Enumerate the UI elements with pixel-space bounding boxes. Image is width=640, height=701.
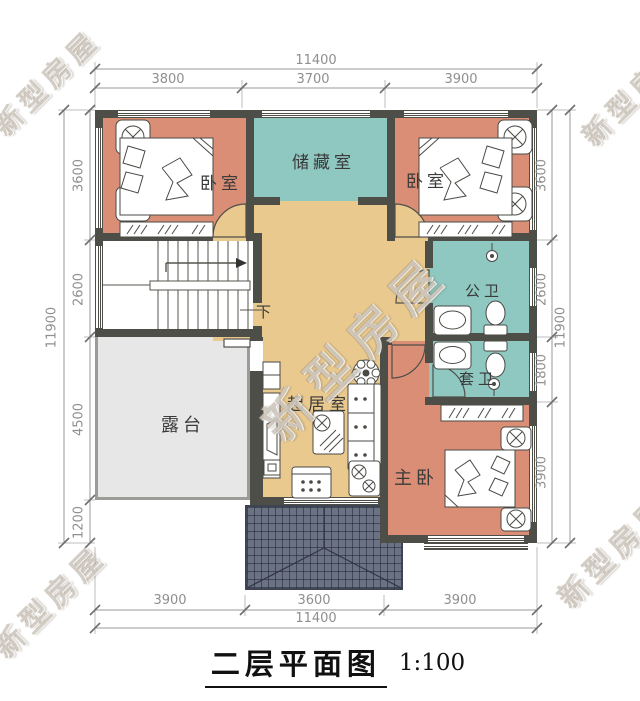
dim-left-seg-3: 1200 bbox=[72, 493, 87, 553]
dim-right-seg-3: 3900 bbox=[535, 443, 550, 503]
window bbox=[284, 497, 378, 505]
floor-plan: 卧室 储藏室 卧室 公卫 套卫 起居室 露台 主卧 下 11400 3800 3… bbox=[0, 0, 640, 701]
window bbox=[428, 535, 524, 543]
room-label-living: 起居室 bbox=[287, 390, 350, 415]
dim-left-seg-0: 3600 bbox=[72, 146, 87, 206]
wall bbox=[380, 337, 392, 345]
dim-right-seg-2: 1800 bbox=[535, 341, 550, 401]
window bbox=[262, 110, 370, 118]
dim-bottom-seg-1: 3600 bbox=[284, 593, 344, 608]
drawing-title: 二层平面图 bbox=[205, 641, 387, 688]
wall bbox=[358, 197, 387, 205]
dim-left-seg-1: 2600 bbox=[72, 260, 87, 320]
drawing-scale: 1:100 bbox=[399, 650, 465, 676]
terrace-door-opening bbox=[250, 341, 263, 371]
stairs-down-label: 下 bbox=[256, 301, 271, 322]
wall bbox=[425, 333, 537, 341]
dim-left-seg-2: 4500 bbox=[72, 390, 87, 450]
wall bbox=[425, 397, 537, 405]
window bbox=[95, 246, 103, 328]
wall bbox=[380, 337, 388, 543]
room-label-ensuite-bath: 套卫 bbox=[459, 368, 497, 389]
dim-right-seg-1: 2600 bbox=[535, 260, 550, 320]
dim-top-seg-0: 3800 bbox=[138, 72, 198, 87]
window bbox=[95, 128, 103, 228]
master-corridor-fill bbox=[384, 341, 429, 405]
wall bbox=[425, 241, 433, 268]
window-sill bbox=[424, 543, 528, 550]
wall bbox=[95, 329, 262, 337]
drawing-title-block: 二层平面图1:100 bbox=[170, 641, 500, 688]
watermark: 新型房屋 bbox=[0, 534, 114, 667]
dim-right-total: 11900 bbox=[554, 298, 569, 358]
wall bbox=[428, 233, 529, 241]
dim-top-seg-2: 3900 bbox=[431, 72, 491, 87]
dim-left-total: 11900 bbox=[45, 298, 60, 358]
room-label-master: 主卧 bbox=[394, 464, 438, 490]
watermark: 新型房屋 bbox=[546, 484, 640, 617]
window bbox=[118, 110, 210, 118]
room-label-storage: 储藏室 bbox=[292, 148, 355, 173]
dim-right-seg-0: 3600 bbox=[535, 146, 550, 206]
room-label-public-bath: 公卫 bbox=[465, 280, 503, 301]
stairwell-fill bbox=[103, 241, 253, 329]
room-label-terrace: 露台 bbox=[161, 411, 205, 437]
dim-bottom-seg-2: 3900 bbox=[430, 593, 490, 608]
watermark: 新型房屋 bbox=[0, 20, 108, 144]
wall bbox=[253, 233, 262, 303]
dim-top-seg-1: 3700 bbox=[283, 72, 343, 87]
room-label-bedroom-right: 卧室 bbox=[406, 167, 448, 192]
watermark: 新型房屋 bbox=[572, 30, 640, 154]
room-label-bedroom-left: 卧室 bbox=[200, 169, 242, 194]
dim-bottom-seg-0: 3900 bbox=[140, 593, 200, 608]
window bbox=[404, 110, 508, 118]
dim-top-total: 11400 bbox=[286, 53, 346, 68]
dim-bottom-total: 11400 bbox=[286, 611, 346, 626]
living-fill bbox=[254, 337, 384, 501]
wall bbox=[246, 110, 254, 241]
wall bbox=[254, 197, 280, 205]
wall bbox=[103, 233, 213, 241]
wall bbox=[387, 110, 395, 241]
